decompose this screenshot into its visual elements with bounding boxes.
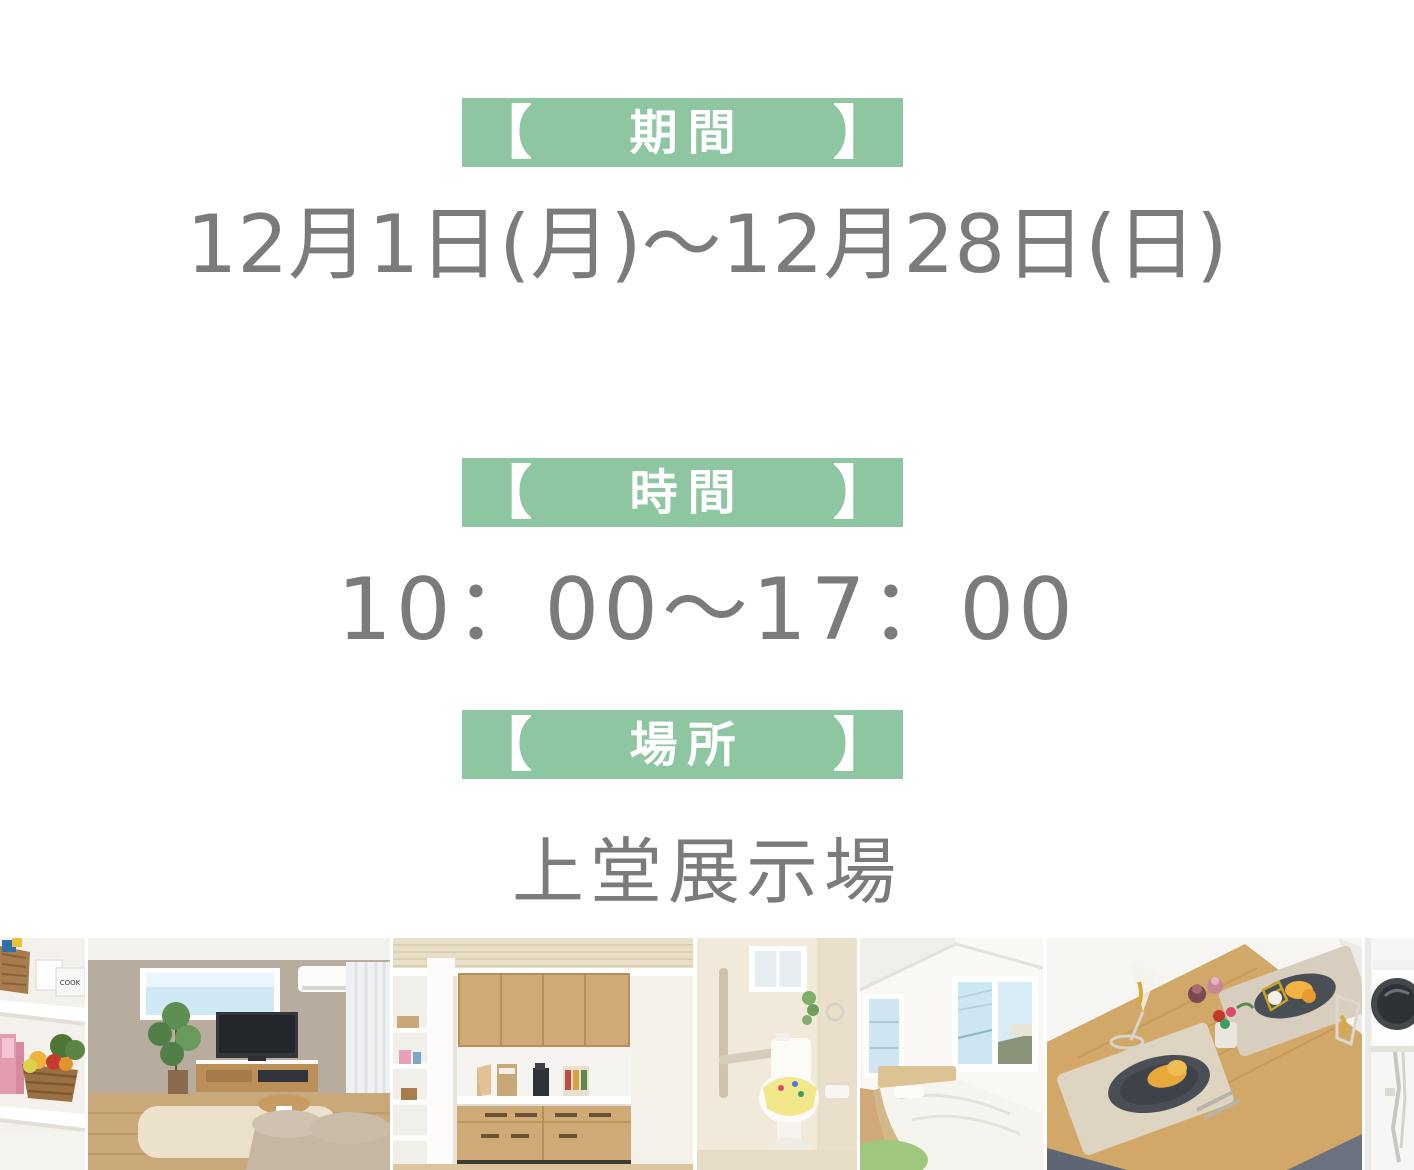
place-value: 上堂展示場 (0, 836, 1414, 908)
place-label: 場所 (619, 721, 745, 769)
period-label: 期間 (619, 109, 745, 157)
bedroom-photo (860, 938, 1043, 1170)
time-label: 時間 (619, 469, 745, 517)
pantry-shelf-photo: COOK (0, 938, 85, 1170)
bracket-left-icon: 【 (474, 464, 532, 522)
living-room-illustration (88, 938, 390, 1170)
bracket-right-icon: 】 (833, 464, 891, 522)
bracket-right-icon: 】 (833, 104, 891, 162)
kitchen-photo (393, 938, 693, 1170)
place-banner: 【 場所 】 (462, 710, 903, 779)
laundry-dryer-photo (1365, 938, 1414, 1170)
time-value: 10：00〜17：00 (0, 567, 1414, 653)
pantry-shelf-illustration: COOK (0, 938, 85, 1170)
bracket-left-icon: 【 (474, 104, 532, 162)
dining-table-photo (1047, 938, 1362, 1170)
bracket-right-icon: 】 (833, 716, 891, 774)
time-banner: 【 時間 】 (462, 458, 903, 527)
cook-box-label: COOK (60, 979, 81, 987)
bracket-left-icon: 【 (474, 716, 532, 774)
dining-table-illustration (1047, 938, 1362, 1170)
toilet-illustration (697, 938, 857, 1170)
period-banner: 【 期間 】 (462, 98, 903, 167)
bedroom-illustration (860, 938, 1043, 1170)
living-room-photo (88, 938, 390, 1170)
flyer-page: 【 期間 】 12月1日(月)〜12月28日(日) 【 時間 】 10：00〜1… (0, 0, 1414, 1170)
photo-strip: COOK (0, 938, 1414, 1170)
toilet-photo (697, 938, 857, 1170)
period-value: 12月1日(月)〜12月28日(日) (0, 205, 1414, 285)
kitchen-illustration (393, 938, 693, 1170)
laundry-dryer-illustration (1365, 938, 1414, 1170)
